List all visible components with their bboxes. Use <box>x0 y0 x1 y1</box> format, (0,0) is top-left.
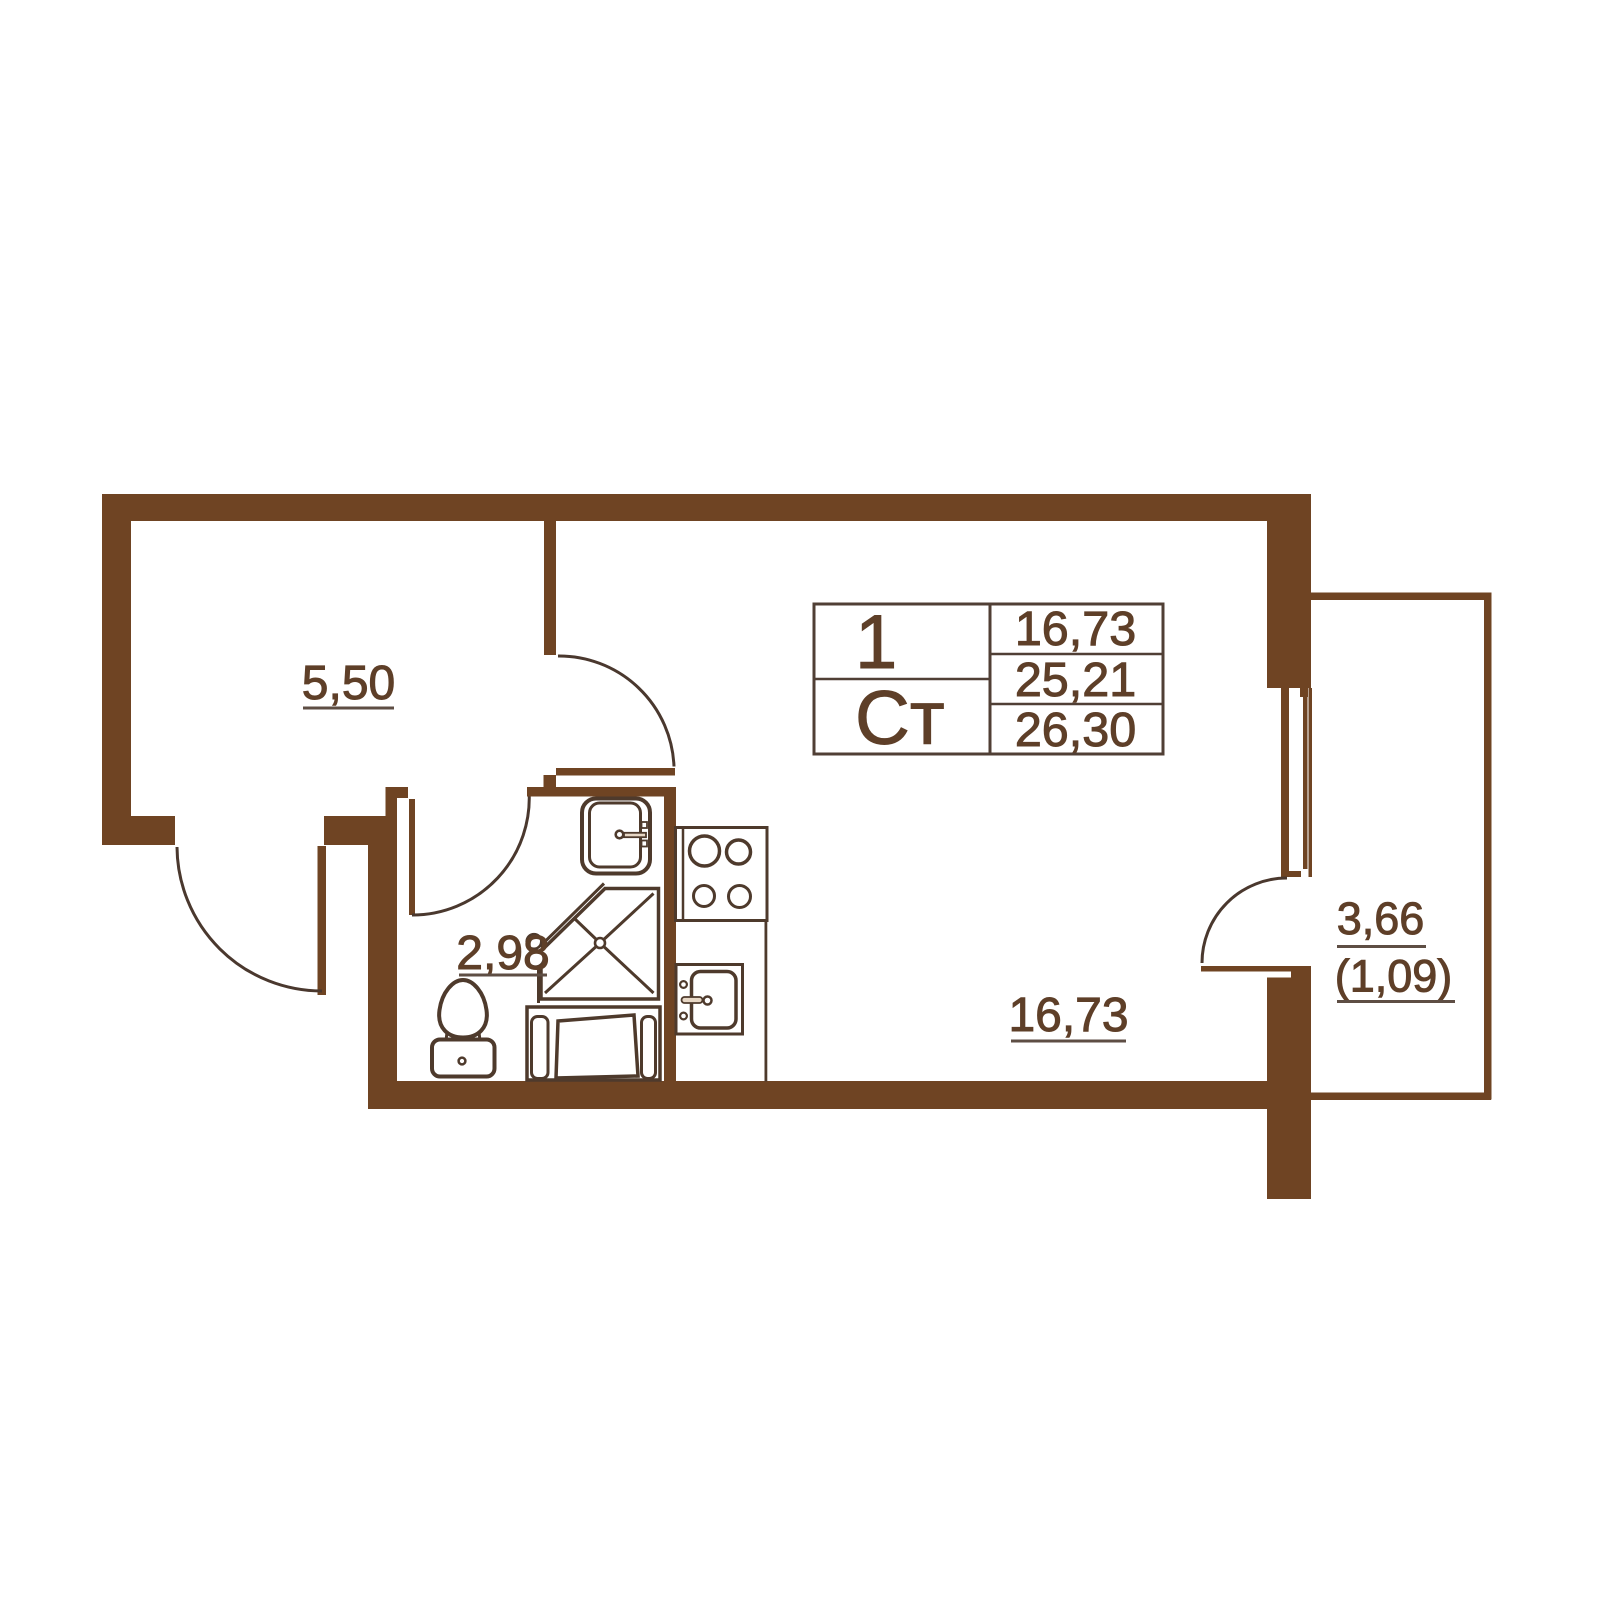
svg-text:Ст: Ст <box>855 676 945 761</box>
svg-text:16,73: 16,73 <box>1015 602 1136 656</box>
svg-text:(1,09): (1,09) <box>1335 951 1453 1002</box>
svg-text:2,98: 2,98 <box>456 927 549 980</box>
svg-text:26,30: 26,30 <box>1015 703 1136 757</box>
svg-text:3,66: 3,66 <box>1337 893 1425 944</box>
svg-text:5,50: 5,50 <box>302 657 395 710</box>
svg-text:16,73: 16,73 <box>1008 989 1128 1042</box>
svg-text:1: 1 <box>855 600 897 685</box>
svg-text:25,21: 25,21 <box>1015 653 1136 707</box>
